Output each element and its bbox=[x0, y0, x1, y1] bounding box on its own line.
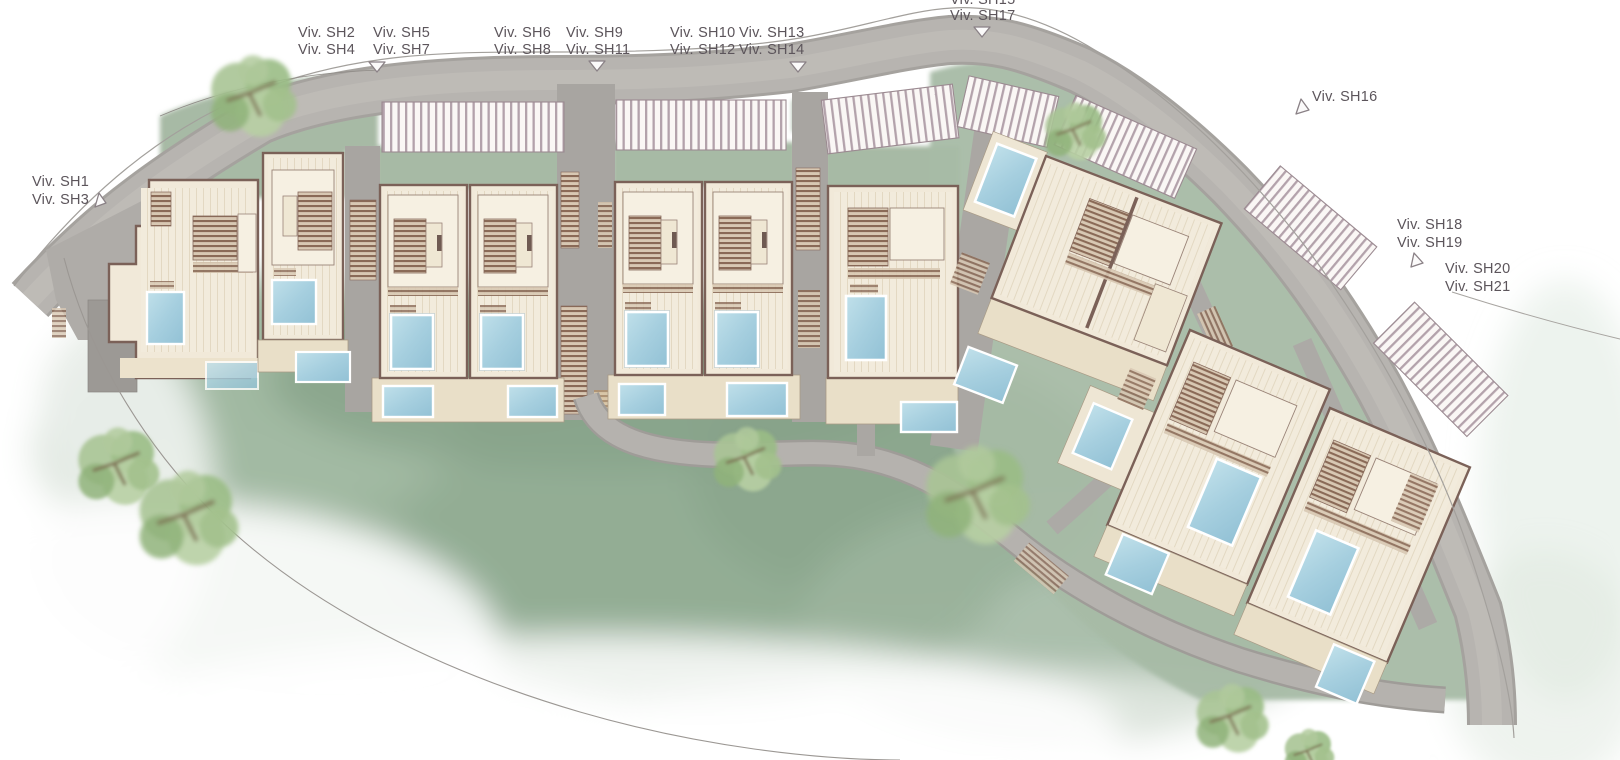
corridor bbox=[792, 92, 828, 422]
swimming-pool bbox=[147, 292, 184, 344]
label-sh3: Viv. SH3 bbox=[32, 192, 89, 208]
label-sh10: Viv. SH10 bbox=[670, 25, 735, 41]
label-sh1: Viv. SH1 bbox=[32, 174, 89, 190]
label-sh5: Viv. SH5 bbox=[373, 25, 430, 41]
stairs bbox=[350, 200, 376, 280]
swimming-pool bbox=[272, 280, 316, 324]
swimming-pool bbox=[383, 386, 433, 417]
swimming-pool bbox=[727, 383, 787, 416]
carport-pergola bbox=[616, 100, 786, 150]
label-sh4: Viv. SH4 bbox=[298, 42, 355, 58]
label-sh21: Viv. SH21 bbox=[1445, 279, 1510, 295]
label-sh18: Viv. SH18 bbox=[1397, 217, 1462, 233]
villa-sh2-sh4 bbox=[258, 153, 350, 382]
villa-sh13-sh14 bbox=[826, 186, 958, 432]
site-plan-page: Viv. SH1 Viv. SH3 Viv. SH2 Viv. SH4 Viv.… bbox=[0, 0, 1620, 760]
swimming-pool bbox=[619, 384, 665, 415]
label-sh11: Viv. SH11 bbox=[566, 42, 630, 58]
label-sh14: Viv. SH14 bbox=[739, 42, 804, 58]
label-sh2: Viv. SH2 bbox=[298, 25, 355, 41]
stairs bbox=[151, 192, 171, 226]
swimming-pool bbox=[206, 362, 258, 389]
label-sh17: Viv. SH17 bbox=[950, 8, 1015, 24]
stairs bbox=[796, 168, 820, 250]
label-sh12: Viv. SH12 bbox=[670, 42, 735, 58]
site-plan-drawing: Viv. SH1 Viv. SH3 Viv. SH2 Viv. SH4 Viv.… bbox=[0, 0, 1620, 760]
swimming-pool bbox=[901, 402, 957, 432]
label-sh19: Viv. SH19 bbox=[1397, 235, 1462, 251]
swimming-pool bbox=[508, 386, 557, 417]
stairs bbox=[298, 192, 332, 250]
label-sh13: Viv. SH13 bbox=[739, 25, 804, 41]
label-sh20: Viv. SH20 bbox=[1445, 261, 1510, 277]
stairs bbox=[561, 172, 579, 248]
swimming-pool bbox=[296, 352, 350, 382]
label-sh7: Viv. SH7 bbox=[373, 42, 430, 58]
stairs bbox=[798, 290, 820, 348]
villa-block-sh5-sh8 bbox=[372, 185, 564, 422]
stairs bbox=[193, 216, 237, 260]
label-sh6: Viv. SH6 bbox=[494, 25, 551, 41]
villa-block-sh9-sh12 bbox=[608, 182, 800, 419]
label-sh9: Viv. SH9 bbox=[566, 25, 623, 41]
stairs bbox=[848, 208, 888, 266]
carport-pergola bbox=[382, 102, 564, 152]
label-sh15: Viv. SH15 bbox=[950, 0, 1015, 8]
label-sh8: Viv. SH8 bbox=[494, 42, 551, 58]
swimming-pool bbox=[846, 296, 886, 360]
label-sh16: Viv. SH16 bbox=[1312, 89, 1377, 105]
